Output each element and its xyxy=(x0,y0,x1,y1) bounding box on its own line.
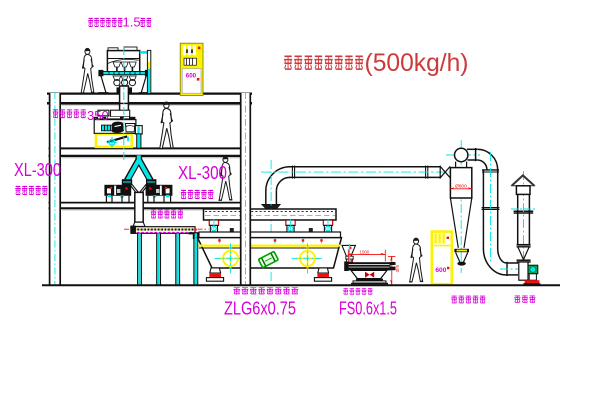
svg-text:Ø800: Ø800 xyxy=(455,184,467,190)
svg-text:XL-300: XL-300 xyxy=(14,160,61,180)
svg-text:600: 600 xyxy=(435,267,446,274)
svg-text:600: 600 xyxy=(186,72,197,79)
svg-text:FS0.6x1.5: FS0.6x1.5 xyxy=(339,299,397,319)
svg-text:1500: 1500 xyxy=(360,250,370,255)
svg-text:540: 540 xyxy=(395,265,400,273)
svg-text:ZLG6x0.75: ZLG6x0.75 xyxy=(224,299,296,319)
svg-text:350: 350 xyxy=(87,108,109,123)
svg-text:1.5: 1.5 xyxy=(123,15,141,30)
svg-text:XL-300: XL-300 xyxy=(178,162,227,183)
svg-text:(500kg/h): (500kg/h) xyxy=(365,49,469,77)
